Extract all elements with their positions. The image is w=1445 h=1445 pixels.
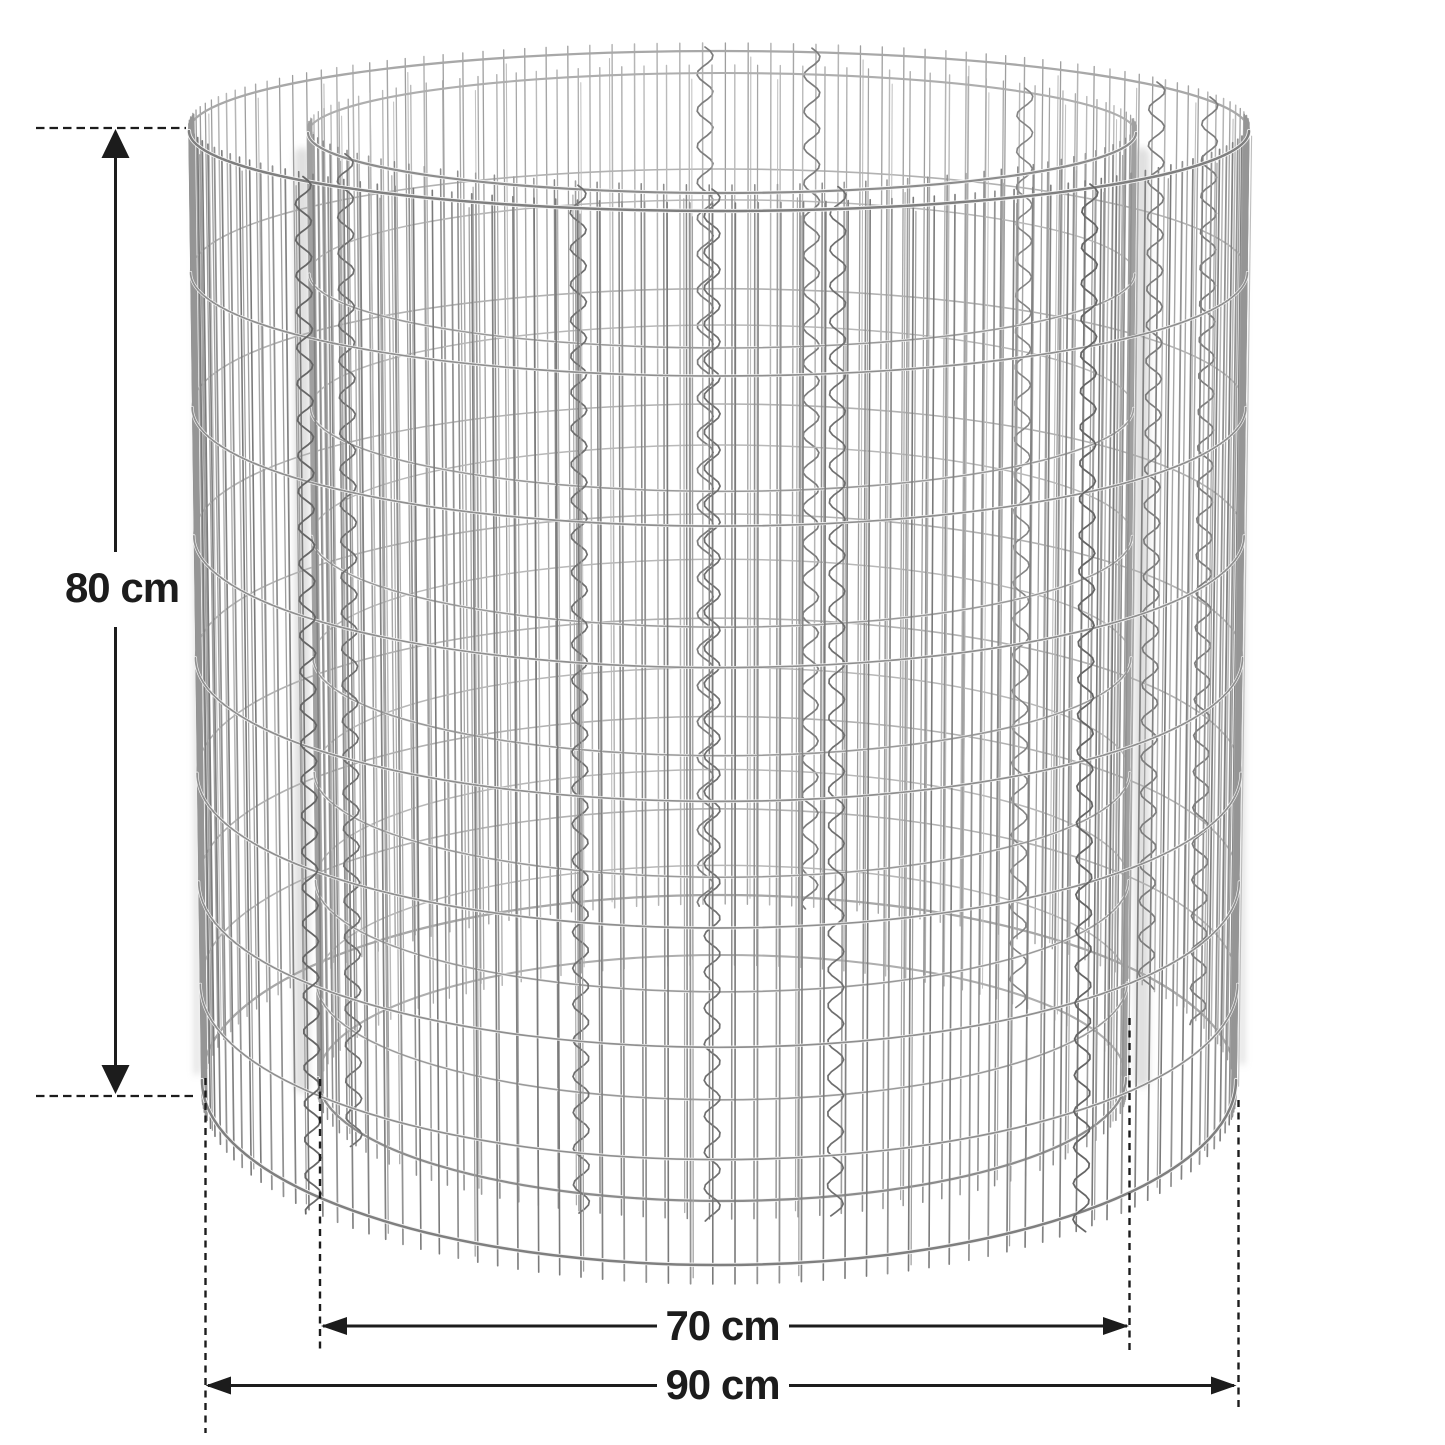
- svg-text:90 cm: 90 cm: [665, 1361, 779, 1408]
- svg-text:70 cm: 70 cm: [665, 1302, 779, 1349]
- svg-text:80 cm: 80 cm: [65, 564, 179, 611]
